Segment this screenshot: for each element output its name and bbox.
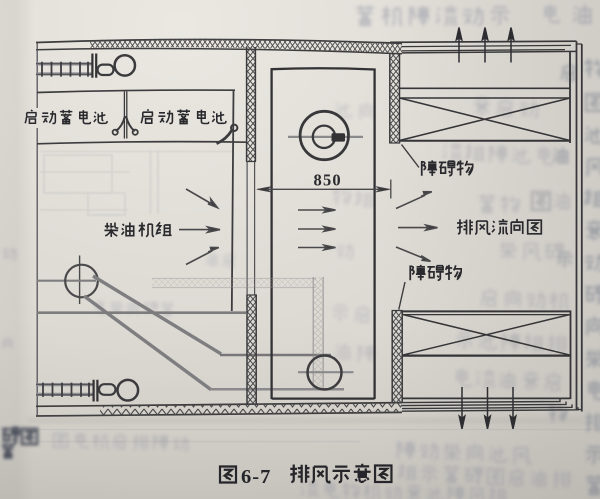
svg-text:850: 850 — [314, 171, 342, 190]
svg-text:6-7: 6-7 — [241, 466, 271, 488]
